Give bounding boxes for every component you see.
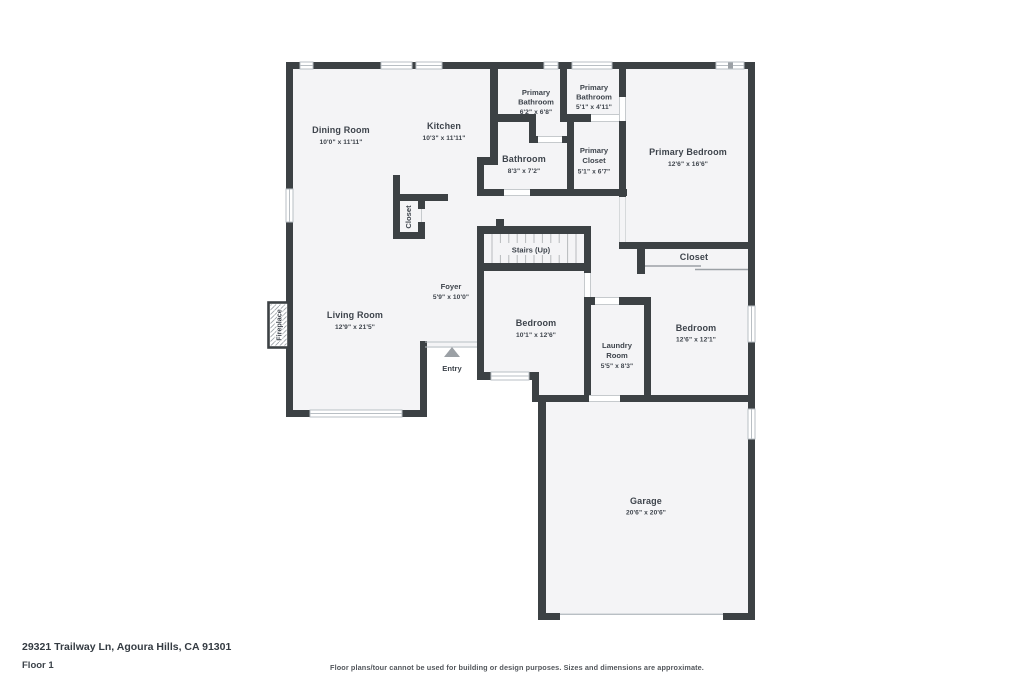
wall-kcloset-top (393, 194, 448, 201)
door-bathroom (504, 189, 530, 196)
wall-pbed-left-upper (619, 69, 626, 97)
window-garage-right (748, 409, 755, 439)
wall-stairs-bottom (477, 263, 591, 271)
label-primary-closet-b: Closet (582, 156, 606, 165)
wall-living-right (420, 341, 427, 417)
wall-kcloset-jamb (418, 201, 425, 209)
label-kitchen: Kitchen (427, 121, 461, 131)
wall-kcloset-left (393, 175, 400, 239)
door-garage-vehicle (560, 613, 723, 620)
label-dining-room: Dining Room (312, 125, 370, 135)
label-primary-bathroom-1a: Primary (522, 88, 551, 97)
wall-top (286, 62, 755, 69)
label-primary-closet-a: Primary (580, 146, 609, 155)
label-laundry-a: Laundry (602, 341, 633, 350)
window-bedroom1 (491, 372, 529, 380)
dims-living-room: 12'9" x 21'5" (335, 324, 375, 331)
dims-primary-closet: 5'1" x 6'7" (578, 169, 611, 176)
label-bathroom: Bathroom (502, 154, 546, 164)
wall-bedroom1-right (584, 226, 591, 402)
dims-laundry: 5'5" x 8'3" (601, 363, 634, 370)
window-living-bottom (310, 410, 402, 417)
dims-bathroom: 8'3" x 7'2" (508, 168, 541, 175)
dims-kitchen: 10'3" x 11'11" (422, 135, 465, 142)
wall-stairs-stub (496, 219, 504, 226)
window-top-3 (416, 62, 442, 69)
wall-pcloset-left (567, 114, 574, 196)
floor-plan: Fireplace Dining Room 10'0" x 11'11" Kit… (0, 0, 1024, 683)
wall-pbed-left-mid (619, 121, 626, 197)
label-bedroom-2: Bedroom (676, 323, 717, 333)
label-entry: Entry (442, 364, 462, 373)
address-text: 29321 Trailway Ln, Agoura Hills, CA 9130… (22, 641, 231, 653)
window-top-6 (716, 62, 744, 69)
wall-kcloset-bottom (393, 232, 425, 239)
label-kitchen-closet: Closet (404, 205, 413, 229)
label-living-room: Living Room (327, 310, 383, 320)
wall-bedcloset-stub (637, 242, 645, 274)
dims-foyer: 5'9" x 10'0" (433, 294, 469, 301)
wall-bath-bottom (477, 189, 627, 196)
wall-foyer-right (477, 226, 484, 380)
floor-living (286, 250, 427, 417)
floor-garage (538, 395, 755, 620)
dims-dining-room: 10'0" x 11'11" (319, 139, 362, 146)
dims-bedroom-2: 12'6" x 12'1" (676, 337, 716, 344)
disclaimer-text: Floor plans/tour cannot be used for buil… (0, 663, 1024, 672)
fireplace: Fireplace (269, 303, 289, 348)
label-bedroom-closet: Closet (680, 252, 708, 262)
wall-left (286, 62, 293, 417)
window-top-1 (300, 62, 313, 69)
floor-plan-page: Fireplace Dining Room 10'0" x 11'11" Kit… (0, 0, 1024, 683)
label-bedroom-1: Bedroom (516, 318, 557, 328)
door-primary-closet (591, 114, 619, 122)
entry-arrow-icon (444, 347, 460, 357)
label-laundry-b: Room (606, 351, 628, 360)
dims-bedroom-1: 10'1" x 12'6" (516, 332, 556, 339)
door-laundry (595, 297, 619, 305)
door-bedroom-1 (584, 273, 591, 297)
wall-garage-left (538, 395, 546, 620)
dims-primary-bathroom-1: 6'2" x 6'8" (520, 109, 553, 116)
wall-garage-top (538, 395, 755, 402)
window-left-dining (286, 189, 293, 222)
wall-kitchen-right (490, 69, 498, 163)
label-garage: Garage (630, 496, 662, 506)
label-foyer: Foyer (441, 282, 462, 291)
dims-primary-bathroom-2: 5'1" x 4'11" (576, 104, 612, 111)
door-primary-bathroom-2 (619, 97, 626, 121)
label-primary-bedroom: Primary Bedroom (649, 147, 727, 157)
door-laundry-garage (589, 395, 620, 402)
dims-garage: 20'6" x 20'6" (626, 510, 666, 517)
dims-primary-bedroom: 12'6" x 16'6" (668, 161, 708, 168)
window-bedroom2-right (748, 306, 755, 342)
window-top-2 (381, 62, 412, 69)
wall-stairs-top (477, 226, 591, 234)
window-top-4 (544, 62, 558, 69)
door-primary-bathroom-1 (538, 136, 562, 143)
label-primary-bathroom-2b: Bathroom (576, 93, 612, 102)
fireplace-label: Fireplace (275, 309, 284, 341)
label-stairs: Stairs (Up) (512, 246, 551, 255)
label-primary-bathroom-2a: Primary (580, 83, 609, 92)
wall-garage-step (532, 372, 539, 402)
wall-laundry-right (644, 297, 651, 402)
label-primary-bathroom-1b: Bathroom (518, 98, 554, 107)
window-top-5 (572, 62, 612, 69)
